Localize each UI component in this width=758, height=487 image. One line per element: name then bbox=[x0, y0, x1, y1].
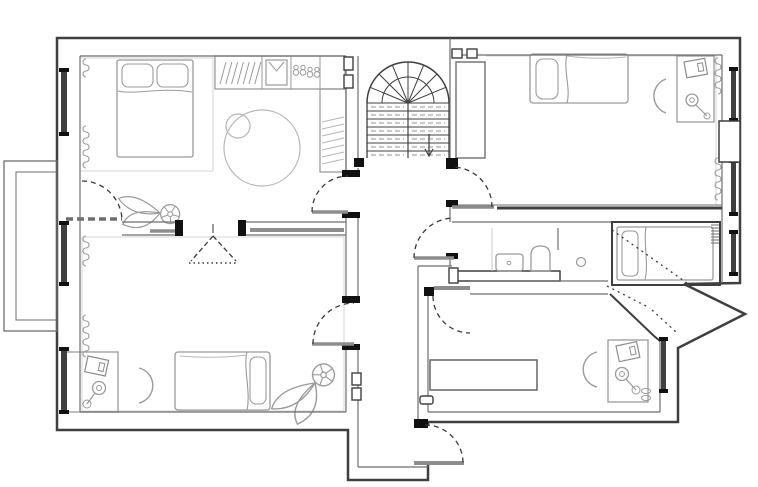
window-left-1 bbox=[59, 68, 69, 136]
bedroom3-chair bbox=[139, 368, 153, 403]
shaft-marker-6 bbox=[352, 388, 361, 400]
floor-plan-page bbox=[0, 0, 758, 487]
jamb-stair-left bbox=[354, 158, 364, 167]
wardrobe-slipper-2 bbox=[300, 65, 306, 75]
jamb-bedroom4-door bbox=[424, 287, 434, 296]
door6-swing-arc bbox=[433, 296, 470, 333]
window-right-2 bbox=[729, 159, 738, 216]
shaft-marker-2 bbox=[344, 75, 353, 88]
bathroom-counter bbox=[456, 271, 560, 281]
shaft-marker-4 bbox=[467, 49, 477, 58]
bedroom2-laptop bbox=[684, 58, 707, 77]
diagonal-corner-wall bbox=[610, 294, 654, 336]
bedroom3-bed-frame bbox=[175, 352, 270, 410]
wardrobe-column-shelf-pile bbox=[322, 117, 344, 164]
bedroom3-curtain-lower bbox=[83, 315, 89, 357]
bedroom4-chair bbox=[583, 352, 597, 387]
window-left-3 bbox=[59, 347, 69, 414]
bedroom4-laptop bbox=[616, 342, 640, 362]
bedroom1-plant bbox=[118, 192, 180, 229]
door1-swing-arc bbox=[82, 181, 122, 221]
bed-nook-bed-frame bbox=[617, 227, 713, 280]
bedroom2-chair bbox=[654, 79, 666, 113]
balcony-outer bbox=[4, 161, 57, 331]
jamb-double-door-right bbox=[238, 220, 246, 236]
window-right-3 bbox=[729, 230, 738, 276]
window-left-2 bbox=[59, 221, 69, 286]
balcony-inner bbox=[16, 172, 57, 320]
wardrobe-slipper-4 bbox=[314, 67, 320, 77]
shaft-marker-5 bbox=[352, 373, 361, 385]
bedroom2-bed-frame bbox=[530, 54, 628, 103]
bedroom4-cabinet bbox=[430, 360, 537, 390]
door2-swing-arc bbox=[312, 176, 348, 212]
bedroom1-pouf bbox=[226, 114, 250, 138]
wardrobe-hangers bbox=[220, 62, 261, 84]
shaft-marker-8 bbox=[420, 396, 433, 404]
wardrobe-shelf-vmark bbox=[269, 62, 284, 71]
bedroom4-radiator-coil-2 bbox=[642, 395, 651, 400]
bedroom1-round-rug bbox=[224, 110, 300, 186]
jamb-hall-3 bbox=[342, 296, 360, 303]
bedroom1-double-bed-frame bbox=[117, 60, 193, 157]
bedroom3-desk-lamp bbox=[83, 382, 106, 409]
bed-nook-radiator bbox=[711, 225, 719, 243]
wardrobe-slipper-1 bbox=[293, 65, 299, 75]
bedroom4-radiator-coil-1 bbox=[642, 388, 651, 393]
staircase bbox=[367, 62, 449, 158]
window-right-1 bbox=[729, 67, 738, 122]
bathroom-sink bbox=[496, 254, 523, 271]
bedroom2-desk-lamp bbox=[686, 94, 710, 119]
bedroom2-wardrobe bbox=[456, 62, 485, 158]
door5-swing-arc bbox=[313, 303, 354, 344]
door4-swing-arc bbox=[414, 218, 454, 258]
bedroom3-laptop bbox=[85, 356, 109, 376]
jamb-vestibule bbox=[414, 419, 428, 428]
shaft-marker-1 bbox=[344, 57, 353, 70]
wardrobe-shelf-box bbox=[266, 60, 287, 85]
bathroom-toilet bbox=[531, 246, 550, 271]
shower-drain bbox=[577, 258, 586, 267]
bathroom-sink-drain bbox=[507, 261, 511, 265]
bed-nook-blanket-edge bbox=[645, 227, 646, 280]
jamb-hall-1 bbox=[342, 170, 360, 177]
floor-plan-svg bbox=[0, 0, 758, 487]
bedroom1-curtain-upper bbox=[83, 59, 89, 77]
bedroom4-desk-lamp bbox=[616, 368, 641, 395]
bed-nook-pillow bbox=[622, 231, 638, 276]
bedroom3-curtain-upper bbox=[83, 236, 89, 266]
shaft-marker-3 bbox=[452, 49, 462, 58]
bedroom1-curtain-lower bbox=[83, 126, 89, 168]
ceiling-slope-dotted-3 bbox=[652, 310, 676, 332]
shaft-marker-7 bbox=[449, 268, 458, 283]
jamb-double-door-left bbox=[175, 220, 183, 236]
wardrobe-slipper-3 bbox=[307, 67, 313, 77]
bedroom3-plant bbox=[271, 352, 340, 429]
radiator-pier-box bbox=[719, 121, 740, 162]
double-door-leaf-right bbox=[213, 236, 236, 261]
double-door-leaf-left bbox=[191, 236, 213, 261]
